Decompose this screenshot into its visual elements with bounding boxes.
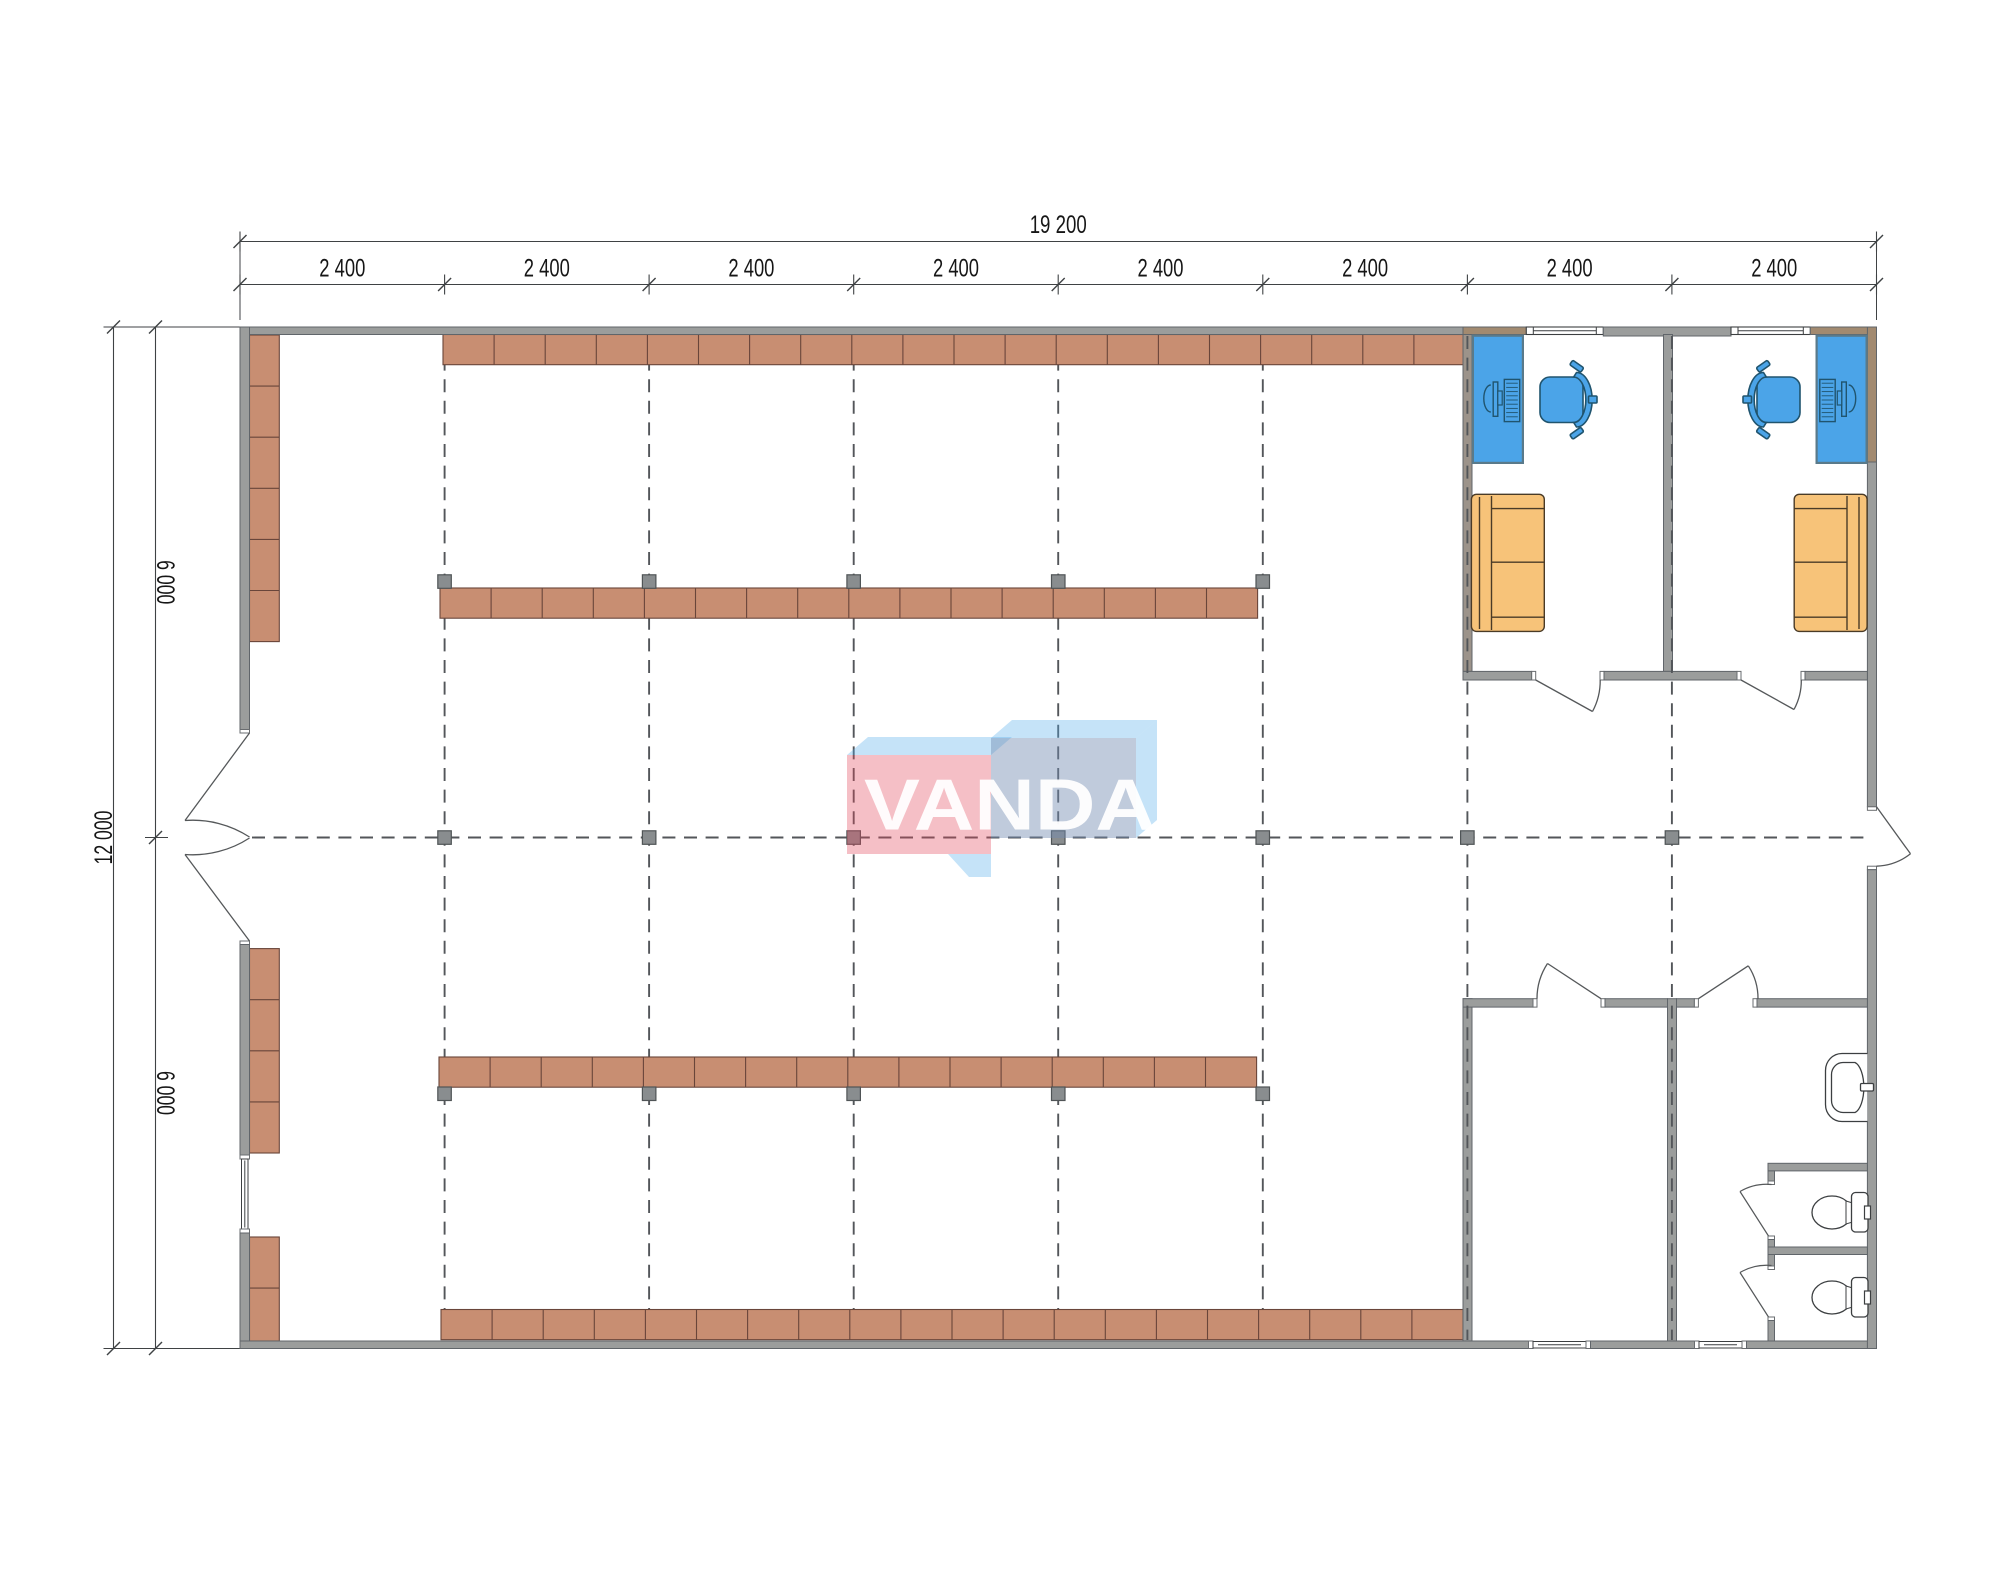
svg-text:19 200: 19 200 — [1030, 211, 1087, 239]
svg-text:2 400: 2 400 — [728, 255, 774, 283]
svg-text:6 000: 6 000 — [151, 560, 179, 604]
svg-text:2 400: 2 400 — [1547, 255, 1593, 283]
svg-text:2 400: 2 400 — [524, 255, 570, 283]
svg-text:2 400: 2 400 — [1751, 255, 1797, 283]
svg-text:2 400: 2 400 — [1342, 255, 1388, 283]
svg-text:12 000: 12 000 — [90, 811, 118, 865]
svg-text:6 000: 6 000 — [151, 1071, 179, 1115]
svg-text:2 400: 2 400 — [933, 255, 979, 283]
svg-text:VANDA: VANDA — [864, 766, 1156, 846]
svg-text:2 400: 2 400 — [1138, 255, 1184, 283]
svg-text:2 400: 2 400 — [319, 255, 365, 283]
